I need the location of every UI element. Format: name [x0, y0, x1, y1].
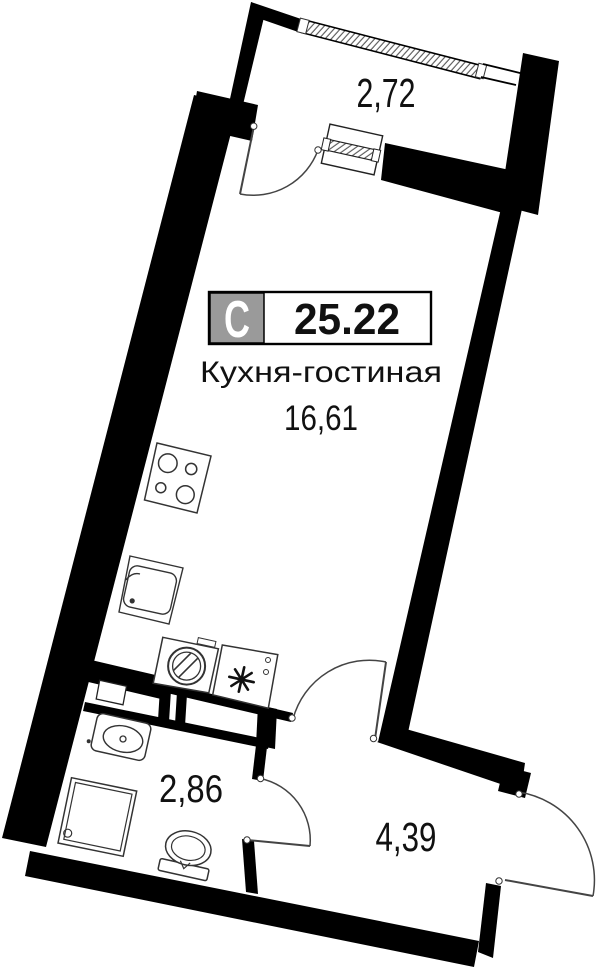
svg-text:16,61: 16,61 [284, 399, 358, 438]
svg-text:2,86: 2,86 [159, 768, 223, 811]
svg-text:Кухня-гостиная: Кухня-гостиная [200, 356, 442, 389]
svg-text:25.22: 25.22 [294, 295, 400, 344]
svg-text:С: С [224, 291, 250, 349]
svg-text:4,39: 4,39 [376, 814, 437, 860]
svg-text:2,72: 2,72 [357, 70, 416, 116]
